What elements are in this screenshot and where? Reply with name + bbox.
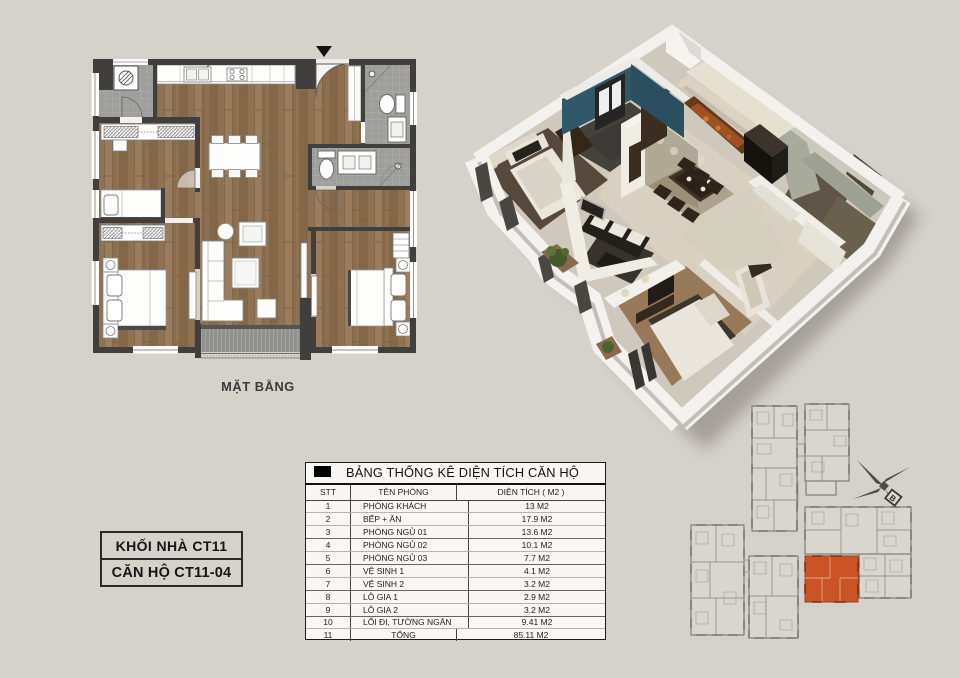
svg-text:MẶT BẰNG: MẶT BẰNG (221, 379, 295, 394)
